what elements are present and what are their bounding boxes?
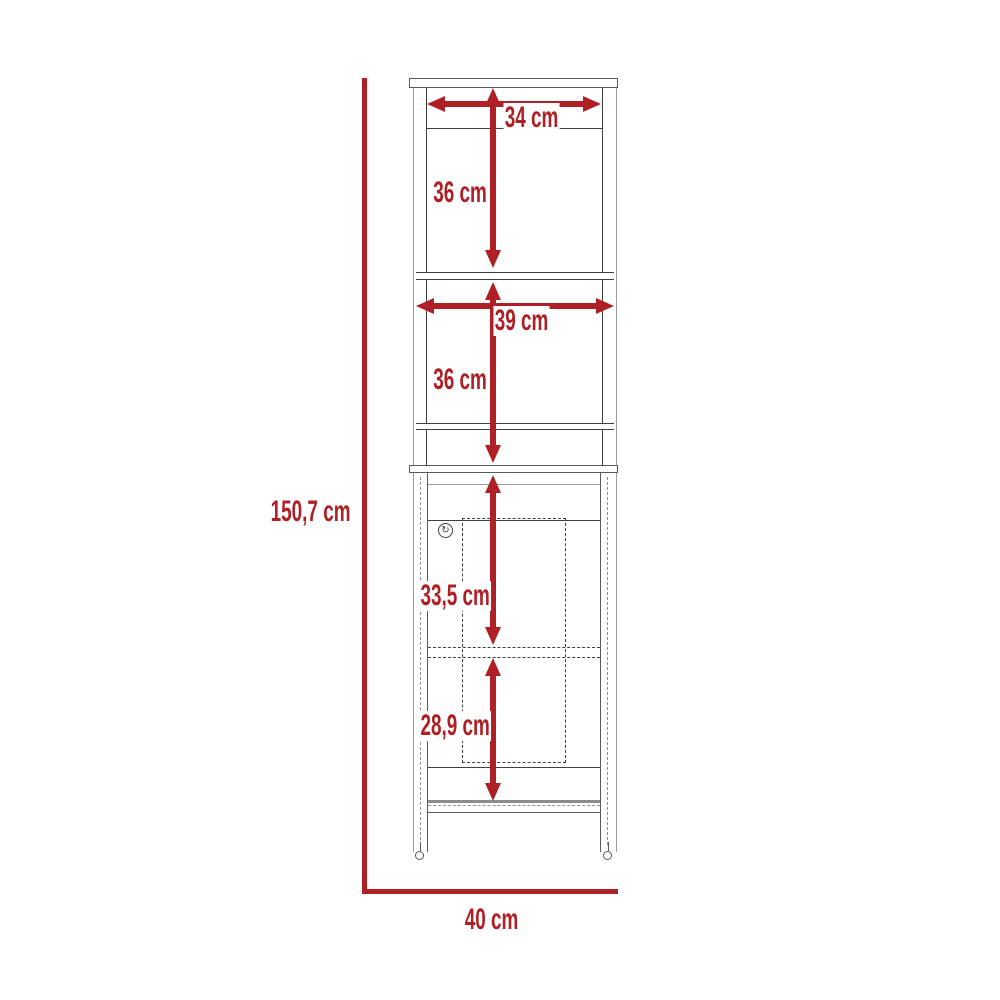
dim-label-middle-width: 39 cm bbox=[484, 307, 560, 334]
dim-label-upper-section-height: 36 cm bbox=[398, 179, 488, 206]
dim-label-overall-height: 150,7 cm bbox=[238, 497, 352, 526]
dim-label-middle-section-height: 36 cm bbox=[398, 366, 488, 393]
dim-arrow-door-section-height bbox=[485, 475, 501, 645]
cabinet-bottom-board bbox=[428, 800, 600, 813]
cabinet-top-board bbox=[409, 78, 618, 88]
lower-back-top-line bbox=[428, 484, 600, 485]
lower-left-stile bbox=[413, 473, 428, 852]
left-foot-stem bbox=[420, 842, 421, 851]
dim-label-door-section-height: 33,5 cm bbox=[391, 582, 491, 609]
hidden-shelf-line-2 bbox=[428, 657, 600, 658]
height-extent-line bbox=[362, 78, 367, 891]
door-knob-icon: ↻ bbox=[438, 523, 453, 538]
door-knob-glyph: ↻ bbox=[441, 526, 449, 536]
upper-shelf-1 bbox=[416, 272, 614, 280]
cabinet-middle-board bbox=[409, 465, 618, 473]
dim-label-overall-width: 40 cm bbox=[446, 905, 538, 934]
dim-label-top-opening-width: 34 cm bbox=[494, 104, 570, 131]
width-extent-line bbox=[362, 889, 618, 894]
lower-right-stile bbox=[600, 473, 617, 852]
lower-door-bottom-rail bbox=[428, 767, 600, 768]
bottom-board-depth-line bbox=[428, 805, 600, 806]
right-foot-icon bbox=[603, 851, 612, 860]
right-stile-depth-line bbox=[607, 477, 608, 845]
upper-shelf-2 bbox=[416, 423, 614, 430]
left-foot-icon bbox=[415, 851, 424, 860]
dimension-diagram: ↻ 34 cm 36 cm 39 cm 36 cm 33,5 cm 28,9 c… bbox=[0, 0, 1000, 1000]
dim-label-bottom-section-height: 28,9 cm bbox=[391, 712, 491, 739]
right-foot-stem bbox=[608, 842, 609, 851]
left-stile-depth-line bbox=[420, 477, 421, 845]
hidden-shelf-line-1 bbox=[428, 647, 600, 648]
